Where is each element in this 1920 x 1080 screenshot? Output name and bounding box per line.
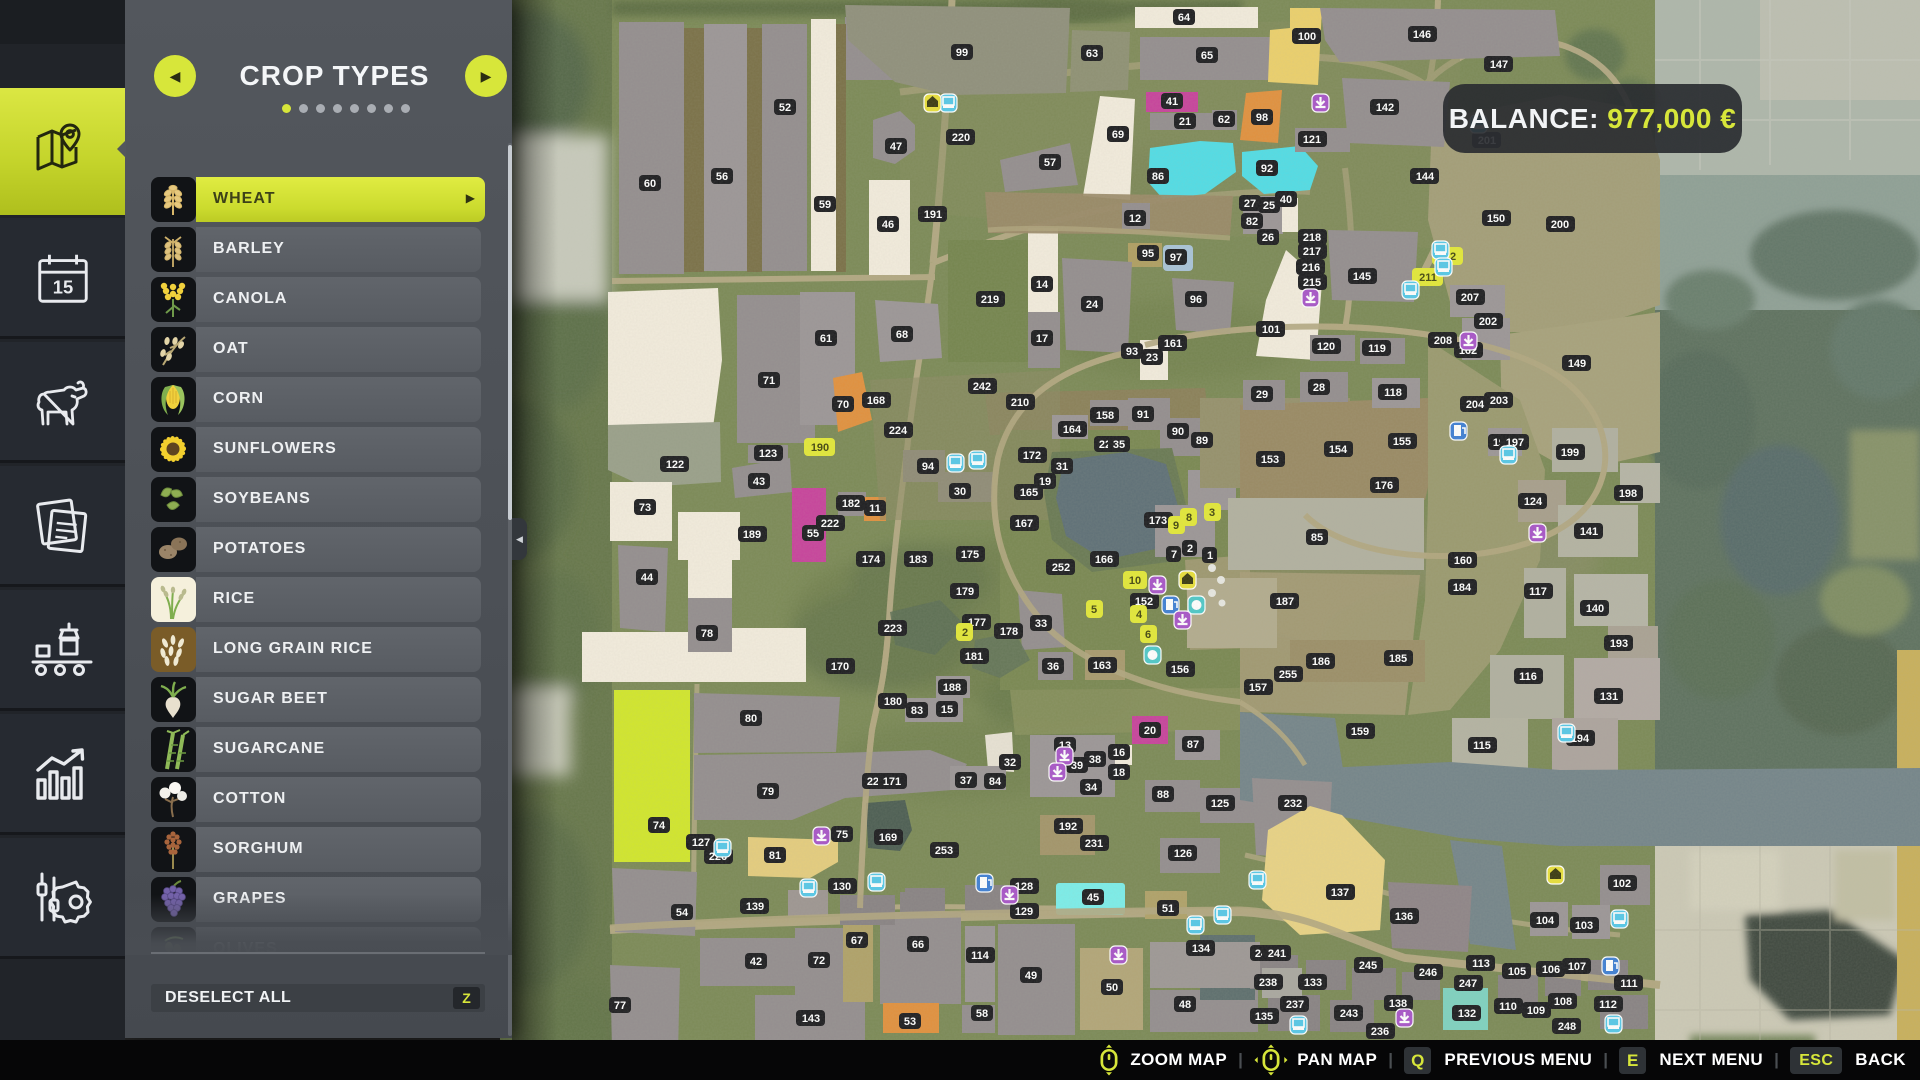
svg-text:15: 15	[53, 277, 73, 298]
